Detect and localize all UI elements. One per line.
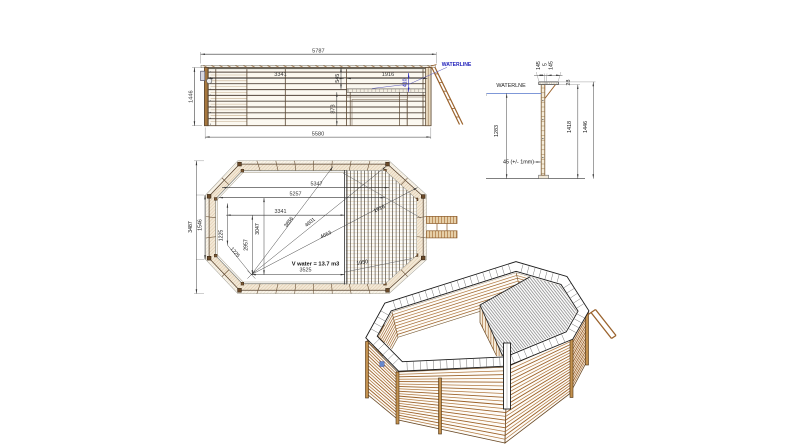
svg-text:1446: 1446 xyxy=(583,121,589,133)
svg-text:45 (+/- 1mm): 45 (+/- 1mm) xyxy=(503,159,534,165)
svg-text:410: 410 xyxy=(402,78,408,87)
svg-text:1225: 1225 xyxy=(218,230,224,242)
svg-text:1418: 1418 xyxy=(567,121,573,133)
svg-text:2957: 2957 xyxy=(244,239,250,251)
svg-text:3341: 3341 xyxy=(274,72,286,78)
svg-text:1546: 1546 xyxy=(198,219,204,231)
svg-text:5347: 5347 xyxy=(311,181,323,187)
svg-text:1446: 1446 xyxy=(189,90,195,102)
svg-text:3047: 3047 xyxy=(255,223,261,235)
svg-text:5580: 5580 xyxy=(312,131,324,137)
svg-text:5787: 5787 xyxy=(312,48,324,54)
svg-text:1283: 1283 xyxy=(494,125,500,137)
svg-text:WATERLINE: WATERLINE xyxy=(442,62,472,68)
svg-text:5257: 5257 xyxy=(290,191,302,197)
svg-text:1916: 1916 xyxy=(382,72,394,78)
svg-text:5: 5 xyxy=(542,63,548,66)
svg-text:873: 873 xyxy=(331,104,337,113)
svg-text:545: 545 xyxy=(335,74,341,83)
svg-text:V water = 13.7 m3: V water = 13.7 m3 xyxy=(292,261,340,267)
svg-text:145: 145 xyxy=(536,61,542,70)
svg-text:WATERLNE: WATERLNE xyxy=(496,83,526,89)
svg-text:3341: 3341 xyxy=(275,209,287,215)
svg-text:145: 145 xyxy=(549,61,555,70)
svg-text:3525: 3525 xyxy=(300,268,312,274)
svg-text:3487: 3487 xyxy=(188,221,194,233)
